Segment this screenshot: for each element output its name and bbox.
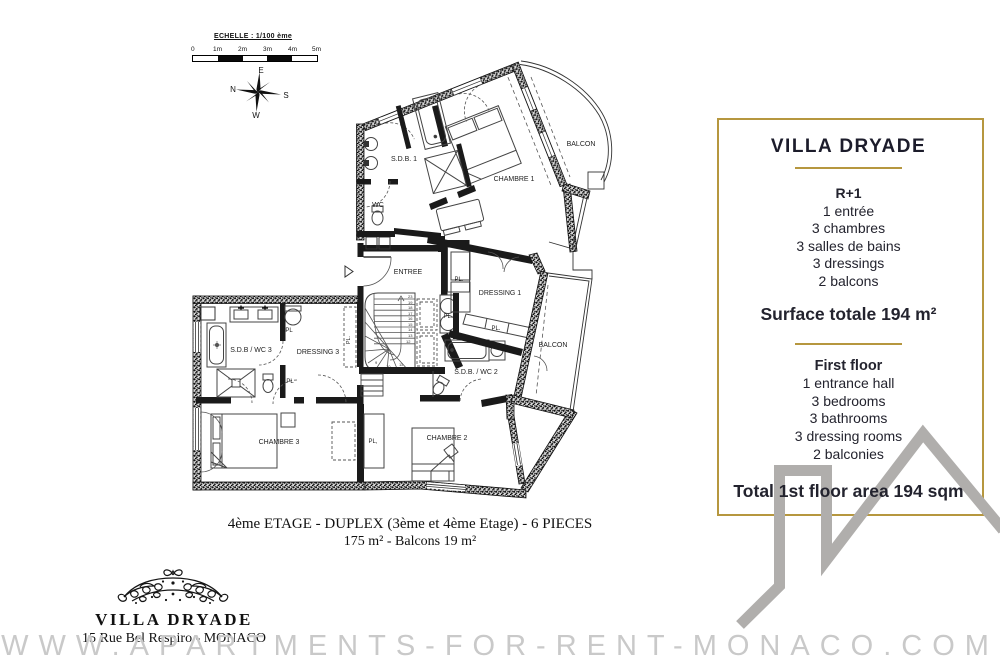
svg-text:S.D.B. / WC 2: S.D.B. / WC 2: [454, 369, 498, 376]
svg-text:18: 18: [408, 305, 413, 310]
svg-text:CHAMBRE 3: CHAMBRE 3: [259, 439, 300, 446]
svg-text:S.D.B. 1: S.D.B. 1: [391, 156, 417, 163]
svg-text:16: 16: [408, 316, 413, 321]
svg-text:PL.: PL.: [454, 277, 463, 283]
svg-text:E: E: [258, 66, 263, 75]
svg-text:CHAMBRE 1: CHAMBRE 1: [494, 176, 535, 183]
svg-text:PL.: PL.: [491, 326, 500, 332]
svg-text:DRESSING 3: DRESSING 3: [297, 349, 340, 356]
svg-text:PL: PL: [285, 328, 293, 334]
svg-text:CHAMBRE 2: CHAMBRE 2: [427, 435, 468, 442]
svg-text:23: 23: [408, 294, 413, 299]
svg-text:PL.: PL.: [443, 314, 452, 320]
svg-text:PL.: PL.: [346, 335, 352, 344]
svg-text:S.D.B / WC 3: S.D.B / WC 3: [230, 347, 272, 354]
svg-text:PL: PL: [286, 379, 294, 385]
svg-text:WC: WC: [372, 202, 384, 209]
svg-text:9: 9: [375, 360, 378, 365]
svg-text:12: 12: [406, 339, 411, 344]
svg-text:ENTREE: ENTREE: [394, 269, 423, 276]
svg-text:DRESSING 1: DRESSING 1: [479, 290, 522, 297]
svg-text:13: 13: [408, 333, 413, 338]
svg-text:N: N: [230, 85, 236, 94]
svg-text:W: W: [252, 111, 260, 120]
svg-text:BALCON: BALCON: [567, 141, 596, 148]
svg-text:BALCON: BALCON: [539, 342, 568, 349]
svg-text:S: S: [283, 91, 288, 100]
svg-text:14: 14: [408, 327, 413, 332]
svg-text:PL,: PL,: [368, 439, 377, 445]
